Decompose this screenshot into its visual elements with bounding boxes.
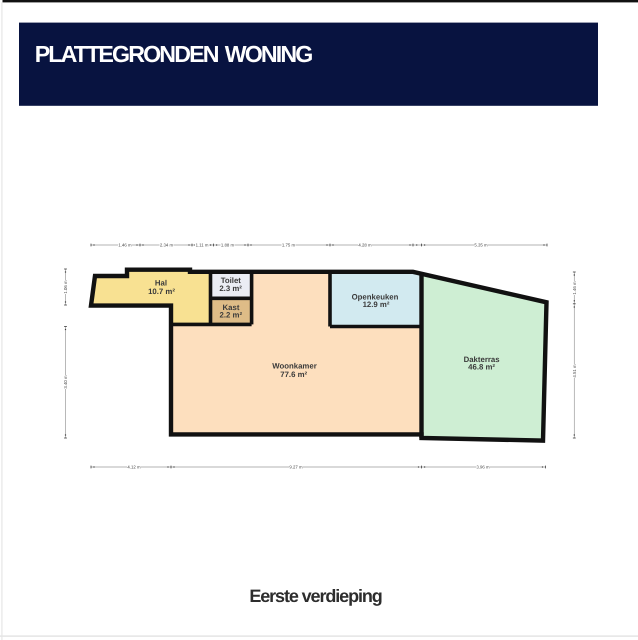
- svg-text:2.34 m: 2.34 m: [160, 243, 174, 248]
- svg-text:1.88 m: 1.88 m: [221, 243, 235, 248]
- svg-text:77.6 m²: 77.6 m²: [280, 370, 307, 379]
- svg-text:3.40 m: 3.40 m: [63, 375, 68, 389]
- svg-text:1.75 m: 1.75 m: [282, 243, 296, 248]
- svg-text:46.8 m²: 46.8 m²: [468, 363, 495, 372]
- svg-text:Hal: Hal: [155, 278, 167, 287]
- svg-text:1.11 m: 1.11 m: [196, 243, 209, 248]
- svg-text:Eerste verdieping: Eerste verdieping: [249, 586, 381, 606]
- svg-text:2.3 m²: 2.3 m²: [219, 284, 242, 293]
- svg-text:PLATTEGRONDEN WONING: PLATTEGRONDEN WONING: [35, 41, 313, 67]
- svg-text:9.27 m: 9.27 m: [289, 465, 303, 470]
- svg-text:2.2 m²: 2.2 m²: [220, 310, 243, 319]
- svg-text:12.9 m²: 12.9 m²: [363, 300, 390, 309]
- svg-text:1.06 m: 1.06 m: [63, 280, 68, 294]
- svg-text:4.28 m: 4.28 m: [358, 243, 372, 248]
- svg-text:3.96 m: 3.96 m: [476, 465, 490, 470]
- svg-text:1.46 m: 1.46 m: [118, 243, 132, 248]
- svg-text:4.51 m: 4.51 m: [572, 364, 577, 378]
- svg-text:4.12 m: 4.12 m: [127, 465, 141, 470]
- svg-text:1.46 m: 1.46 m: [572, 281, 577, 295]
- svg-text:5.35 m: 5.35 m: [474, 243, 488, 248]
- svg-text:10.7 m²: 10.7 m²: [148, 287, 175, 296]
